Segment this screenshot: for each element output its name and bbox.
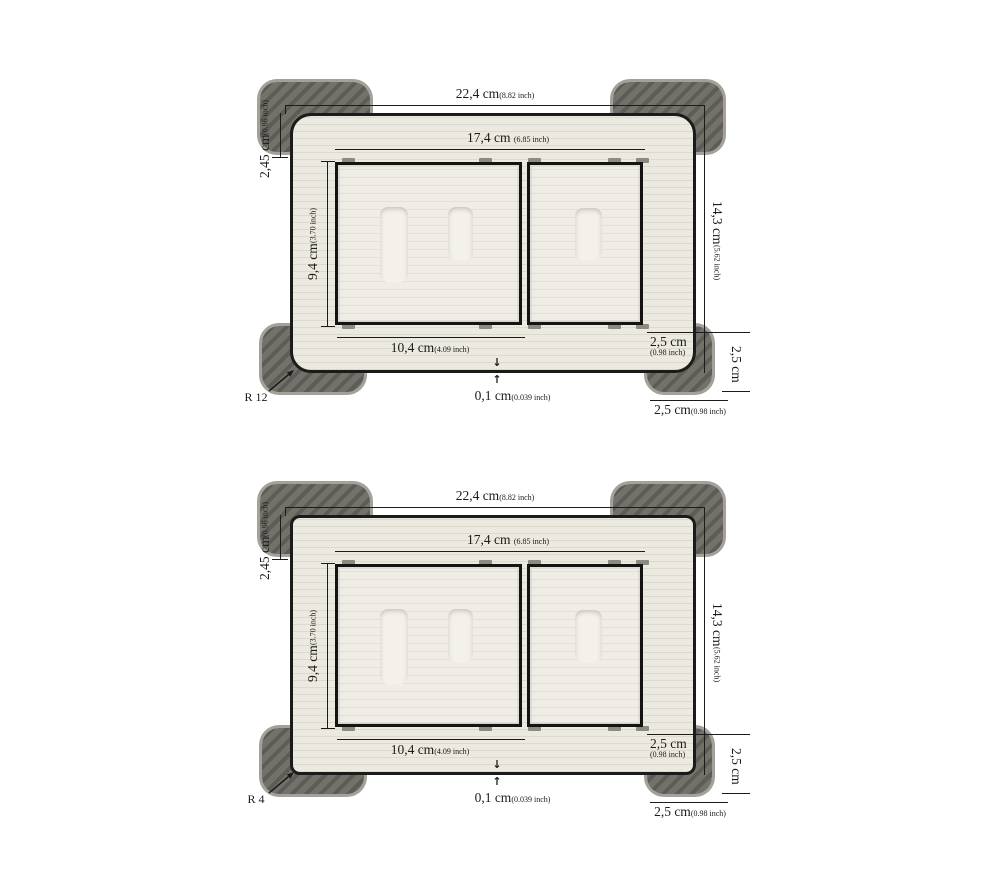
switch-slot-3 [575, 208, 602, 260]
inner-height-top-tick [321, 563, 335, 564]
switch-slot-2 [448, 609, 473, 662]
outer-width-label: 22,4 cm(8.82 inch) [395, 86, 595, 102]
bottom-width-dimension-line [337, 739, 525, 740]
bottom-inset-dimension-line [650, 802, 728, 803]
edge-height-label: 2,45 cm(0.96 inch) [252, 90, 278, 188]
up-arrow-icon: ↑ [490, 374, 504, 385]
lip-thickness-label: 0,1 cm(0.039 inch) [440, 388, 585, 404]
side-inset-label: 2,5 cm [724, 338, 748, 390]
side-inset-bottom-tick [722, 793, 750, 794]
corner-inset-dimension-line [647, 332, 750, 333]
bottom-width-dimension-line [337, 337, 525, 338]
dimension-diagram-r12: 22,4 cm(8.82 inch) 17,4 cm (6.85 inch) 2… [240, 80, 770, 440]
down-arrow-icon: ↓ [490, 759, 504, 770]
up-arrow-icon: ↑ [490, 776, 504, 787]
outer-height-label: 14,3 cm(5.62 inch) [705, 138, 729, 343]
bottom-inset-label: 2,5 cm(0.98 inch) [644, 804, 736, 820]
bottom-width-label: 10,4 cm(4.09 inch) [330, 742, 530, 758]
inner-height-bottom-tick [321, 326, 335, 327]
side-inset-label: 2,5 cm [724, 740, 748, 792]
inner-height-label: 9,4 cm(3.70 inch) [300, 590, 326, 702]
dimension-diagram-r4: 22,4 cm(8.82 inch) 17,4 cm (6.85 inch) 2… [240, 482, 770, 842]
inner-height-top-tick [321, 161, 335, 162]
outer-width-dimension-line [285, 105, 704, 106]
inner-width-dimension-line [335, 149, 645, 150]
bottom-inset-dimension-line [650, 400, 728, 401]
outer-width-dimension-line [285, 507, 704, 508]
inner-height-dimension-line [327, 162, 328, 326]
corner-inset-label: 2,5 cm(0.98 inch) [650, 737, 734, 760]
gang-box-left [335, 564, 522, 727]
side-inset-bottom-tick [722, 391, 750, 392]
inner-width-label: 17,4 cm (6.85 inch) [408, 130, 608, 146]
edge-height-label: 2,45 cm(0.96 inch) [252, 492, 278, 590]
outer-height-label: 14,3 cm(5.62 inch) [705, 540, 729, 745]
corner-inset-dimension-line [647, 734, 750, 735]
outer-width-end-tick [285, 507, 286, 516]
switch-slot-1 [380, 207, 408, 282]
switch-slot-1 [380, 609, 408, 684]
lip-thickness-label: 0,1 cm(0.039 inch) [440, 790, 585, 806]
corner-inset-label: 2,5 cm(0.98 inch) [650, 335, 734, 358]
inner-height-label: 9,4 cm(3.70 inch) [300, 188, 326, 300]
gang-box-left [335, 162, 522, 325]
edge-height-dimension-line [280, 113, 281, 158]
outer-width-end-tick [285, 105, 286, 114]
radius-arrow-icon [267, 769, 297, 795]
inner-height-bottom-tick [321, 728, 335, 729]
inner-height-dimension-line [327, 564, 328, 728]
edge-height-dimension-line [280, 515, 281, 560]
switch-slot-3 [575, 610, 602, 662]
inner-width-label: 17,4 cm (6.85 inch) [408, 532, 608, 548]
radius-arrow-icon [267, 367, 297, 393]
down-arrow-icon: ↓ [490, 357, 504, 368]
bottom-width-label: 10,4 cm(4.09 inch) [330, 340, 530, 356]
inner-width-dimension-line [335, 551, 645, 552]
switch-slot-2 [448, 207, 473, 260]
outer-width-label: 22,4 cm(8.82 inch) [395, 488, 595, 504]
bottom-inset-label: 2,5 cm(0.98 inch) [644, 402, 736, 418]
product-dimensions-page: 22,4 cm(8.82 inch) 17,4 cm (6.85 inch) 2… [0, 0, 990, 891]
